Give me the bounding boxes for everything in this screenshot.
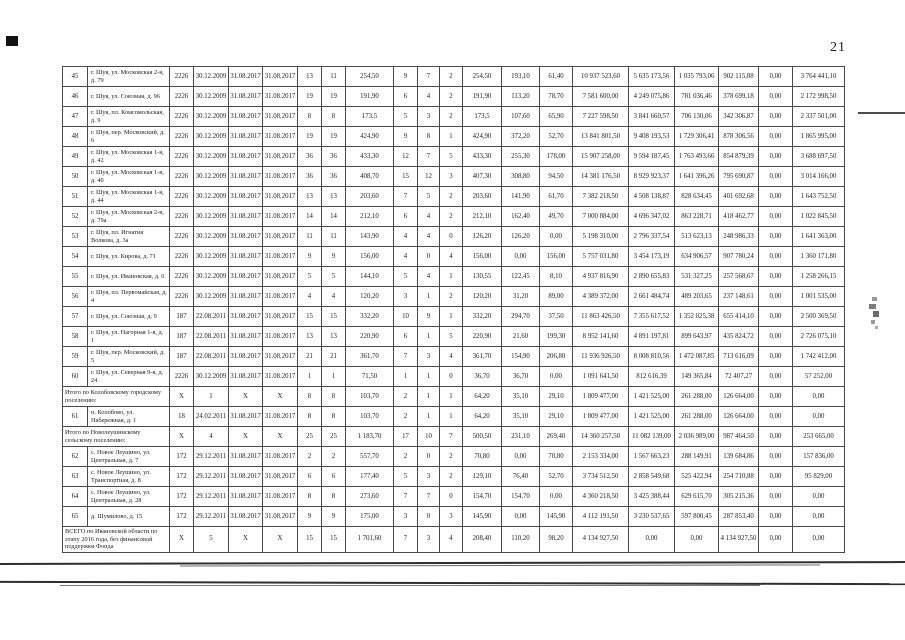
value-cell: 52,70 (540, 467, 573, 487)
value-cell: 31.08.2017 (263, 507, 298, 527)
value-cell: 143,90 (346, 227, 394, 247)
address-cell: с. Новое Леушино, ул. Транспортная, д. 8 (88, 467, 170, 487)
value-cell: 110,20 (502, 527, 540, 553)
value-cell: 372,20 (502, 127, 540, 147)
value-cell: 98,20 (540, 527, 573, 553)
value-cell: X (170, 387, 194, 407)
address-cell: с. Новое Леушино, ул. Центральная, д. 7 (88, 447, 170, 467)
address-cell: г. Шуя, ул. Московская 2-я, д. 79 (88, 67, 170, 87)
value-cell: 212,10 (463, 207, 502, 227)
value-cell: 31.08.2017 (263, 87, 298, 107)
value-cell: 854 879,39 (719, 147, 759, 167)
value-cell: 1 (418, 367, 440, 387)
value-cell: 4 112 191,50 (573, 507, 629, 527)
value-cell: 2 726 075,10 (793, 327, 845, 347)
value-cell: X (170, 427, 194, 447)
address-cell: г. Шуя, пл. Первомайская, д. 4 (88, 287, 170, 307)
value-cell: 64,20 (463, 387, 502, 407)
value-cell: 2 (440, 207, 463, 227)
value-cell: 0,00 (793, 507, 845, 527)
value-cell: 287 853,40 (719, 507, 759, 527)
value-cell: 187 (170, 307, 194, 327)
value-cell: 57 252,00 (793, 367, 845, 387)
value-cell: 89,00 (540, 287, 573, 307)
value-cell: 1 472 087,85 (675, 347, 719, 367)
value-cell: 0,00 (502, 247, 540, 267)
value-cell: 120,20 (463, 287, 502, 307)
value-cell: 2 036 989,00 (675, 427, 719, 447)
value-cell: 61,70 (540, 187, 573, 207)
table-row: 60г. Шуя, ул. Северная 9-я, д. 24222630.… (63, 367, 845, 387)
value-cell: 308,80 (502, 167, 540, 187)
value-cell: 31.08.2017 (263, 327, 298, 347)
value-cell: 0,00 (793, 407, 845, 427)
value-cell: 14 360 257,50 (573, 427, 629, 447)
value-cell: 156,00 (346, 247, 394, 267)
value-cell: 11 863 426,50 (573, 307, 629, 327)
value-cell: 203,60 (346, 187, 394, 207)
value-cell: 178,00 (540, 147, 573, 167)
value-cell: 31.08.2017 (263, 487, 298, 507)
value-cell: 0,00 (759, 247, 793, 267)
value-cell: 261 288,00 (675, 407, 719, 427)
value-cell: 30.12.2009 (194, 67, 229, 87)
table-row: 45г. Шуя, ул. Московская 2-я, д. 7922263… (63, 67, 845, 87)
value-cell: 31.08.2017 (263, 187, 298, 207)
value-cell: 31.08.2017 (263, 247, 298, 267)
value-cell: 10 937 523,60 (573, 67, 629, 87)
value-cell: 8 (298, 487, 322, 507)
value-cell: 31.08.2017 (229, 127, 263, 147)
scan-artifact-line (180, 564, 820, 566)
value-cell: 61,40 (540, 67, 573, 87)
value-cell: 72 407,27 (719, 367, 759, 387)
value-cell: 5 (394, 467, 418, 487)
value-cell: 2 (440, 187, 463, 207)
address-cell: г. Шуя, пл. Игнатия Волкова, д. 3а (88, 227, 170, 247)
value-cell: 3 425 388,44 (629, 487, 675, 507)
value-cell: 378 699,18 (719, 87, 759, 107)
value-cell: 361,70 (346, 347, 394, 367)
value-cell: 103,70 (346, 407, 394, 427)
value-cell: 9 (394, 127, 418, 147)
value-cell: 2226 (170, 227, 194, 247)
value-cell: 1 352 025,38 (675, 307, 719, 327)
address-cell: г. Шуя, ул. Кирова, д. 71 (88, 247, 170, 267)
value-cell: 8 (322, 107, 346, 127)
value-cell: 145,90 (540, 507, 573, 527)
value-cell: 29,10 (540, 387, 573, 407)
value-cell: 22.08.2011 (194, 307, 229, 327)
value-cell: 7 (418, 487, 440, 507)
value-cell: 5 (394, 267, 418, 287)
row-number-cell: 59 (63, 347, 88, 367)
value-cell: 2 500 369,50 (793, 307, 845, 327)
value-cell: 1 (194, 387, 229, 407)
row-number-cell: 49 (63, 147, 88, 167)
value-cell: 0,00 (759, 507, 793, 527)
value-cell: 248 986,33 (719, 227, 759, 247)
value-cell: 7 (418, 147, 440, 167)
value-cell: X (263, 427, 298, 447)
value-cell: 1 (440, 267, 463, 287)
value-cell: 208,40 (463, 527, 502, 553)
value-cell: 1 001 535,00 (793, 287, 845, 307)
value-cell: 899 643,97 (675, 327, 719, 347)
value-cell: 8 929 923,37 (629, 167, 675, 187)
value-cell: 4 (194, 427, 229, 447)
value-cell: 332,20 (463, 307, 502, 327)
value-cell: X (263, 527, 298, 553)
value-cell: 187 (170, 327, 194, 347)
table-row: 57г. Шуя, ул. Союзная, д. 918722.08.2011… (63, 307, 845, 327)
value-cell: 103,70 (346, 387, 394, 407)
row-number-cell: 63 (63, 467, 88, 487)
value-cell: 1 763 493,66 (675, 147, 719, 167)
value-cell: 31.08.2017 (263, 107, 298, 127)
value-cell: 254 710,88 (719, 467, 759, 487)
table-row: 61п. Колобово, ул. Набережная, д. 11824.… (63, 407, 845, 427)
value-cell: 7 (418, 67, 440, 87)
value-cell: 987 464,50 (719, 427, 759, 447)
value-cell: 261 288,00 (675, 387, 719, 407)
value-cell: 30.12.2009 (194, 367, 229, 387)
value-cell: 126,20 (502, 227, 540, 247)
address-cell: г. Шуя, ул. Московская 1-я, д. 44 (88, 187, 170, 207)
value-cell: 1 742 412,00 (793, 347, 845, 367)
value-cell: 3 (394, 507, 418, 527)
value-cell: 31.08.2017 (263, 347, 298, 367)
value-cell: 2226 (170, 287, 194, 307)
scan-artifact-line (60, 585, 760, 586)
scanned-document-page: 21 45г. Шуя, ул. Московская 2-я, д. 7922… (0, 0, 905, 640)
value-cell: 7 355 617,52 (629, 307, 675, 327)
table-row: 52г. Шуя, ул. Московская 2-я, д. 79а2226… (63, 207, 845, 227)
row-number-cell: 62 (63, 447, 88, 467)
row-number-cell: 56 (63, 287, 88, 307)
value-cell: 13 (322, 327, 346, 347)
value-cell: 1 (418, 407, 440, 427)
value-cell: 0,00 (793, 527, 845, 553)
value-cell: 0,00 (540, 487, 573, 507)
value-cell: 1 641 363,00 (793, 227, 845, 247)
address-cell: г. Шуя, ул. Союзная, д. 96 (88, 87, 170, 107)
value-cell: 4 (418, 207, 440, 227)
value-cell: 3 (418, 107, 440, 127)
row-number-cell: 51 (63, 187, 88, 207)
value-cell: 29.12.2011 (194, 467, 229, 487)
table-row: 46г. Шуя, ул. Союзная, д. 96222630.12.20… (63, 87, 845, 107)
table-row: 50г. Шуя, ул. Московская 1-я, д. 4022263… (63, 167, 845, 187)
value-cell: 3 764 441,10 (793, 67, 845, 87)
value-cell: 156,00 (540, 247, 573, 267)
value-cell: 3 014 166,00 (793, 167, 845, 187)
value-cell: 2 796 337,54 (629, 227, 675, 247)
value-cell: 31.08.2017 (229, 307, 263, 327)
value-cell: 0,00 (759, 527, 793, 553)
value-cell: 25 (298, 427, 322, 447)
summary-label-cell: Итого по Новолеушинскому сельскому посел… (63, 427, 170, 447)
value-cell: 424,90 (463, 127, 502, 147)
value-cell: 193,10 (502, 67, 540, 87)
value-cell: 4 360 218,50 (573, 487, 629, 507)
value-cell: 36,70 (502, 367, 540, 387)
value-cell: 145,90 (463, 507, 502, 527)
value-cell: 29,10 (540, 407, 573, 427)
value-cell: 120,20 (346, 287, 394, 307)
address-cell: г. Шуя, ул. Нагорная 1-я, д. 1 (88, 327, 170, 347)
value-cell: 1 035 793,06 (675, 67, 719, 87)
value-cell: 126 664,00 (719, 387, 759, 407)
value-cell: 7 000 884,00 (573, 207, 629, 227)
value-cell: 525 422,94 (675, 467, 719, 487)
value-cell: 3 (418, 347, 440, 367)
value-cell: 7 382 218,50 (573, 187, 629, 207)
address-cell: г. Шуя, пер. Московский, д. 5 (88, 347, 170, 367)
address-cell: г. Шуя, ул. Московская 2-я, д. 79а (88, 207, 170, 227)
value-cell: 31.08.2017 (263, 367, 298, 387)
value-cell: 156,00 (463, 247, 502, 267)
value-cell: 273,60 (346, 487, 394, 507)
row-number-cell: 48 (63, 127, 88, 147)
value-cell: 1 (298, 367, 322, 387)
value-cell: 1 809 477,00 (573, 407, 629, 427)
value-cell: 31.08.2017 (229, 327, 263, 347)
value-cell: 162,40 (502, 207, 540, 227)
value-cell: 8 (418, 127, 440, 147)
value-cell: 2 (440, 467, 463, 487)
value-cell: 22.08.2011 (194, 327, 229, 347)
value-cell: 2226 (170, 147, 194, 167)
value-cell: 655 414,10 (719, 307, 759, 327)
value-cell: 29.12.2011 (194, 487, 229, 507)
value-cell: 31.08.2017 (229, 347, 263, 367)
value-cell: 21,60 (502, 327, 540, 347)
value-cell: 9 408 193,53 (629, 127, 675, 147)
value-cell: 94,50 (540, 167, 573, 187)
value-cell: 1 (418, 287, 440, 307)
value-cell: 11 936 926,50 (573, 347, 629, 367)
value-cell: 7 (394, 347, 418, 367)
value-cell: 2 858 549,68 (629, 467, 675, 487)
summary-row: Итого по Колобовскому городскому поселен… (63, 387, 845, 407)
value-cell: 253 665,00 (793, 427, 845, 447)
value-cell: 8 (298, 387, 322, 407)
value-cell: 31.08.2017 (263, 267, 298, 287)
table-row: 49г. Шуя, ул. Московская 1-я, д. 4222263… (63, 147, 845, 167)
value-cell: 0,00 (759, 67, 793, 87)
value-cell: 2226 (170, 187, 194, 207)
value-cell: 29.12.2011 (194, 447, 229, 467)
value-cell: 0 (418, 447, 440, 467)
value-cell: 795 690,87 (719, 167, 759, 187)
value-cell: 863 228,71 (675, 207, 719, 227)
value-cell: 31.08.2017 (229, 407, 263, 427)
value-cell: 52,70 (540, 127, 573, 147)
value-cell: 5 757 031,80 (573, 247, 629, 267)
value-cell: 8 (322, 487, 346, 507)
value-cell: 19 (322, 127, 346, 147)
value-cell: 29.12.2011 (194, 507, 229, 527)
value-cell: 31.08.2017 (263, 207, 298, 227)
value-cell: 5 635 173,56 (629, 67, 675, 87)
value-cell: 424,90 (346, 127, 394, 147)
value-cell: 3 (440, 507, 463, 527)
value-cell: 19 (298, 87, 322, 107)
value-cell: 2 (440, 447, 463, 467)
value-cell: 3 454 173,19 (629, 247, 675, 267)
address-cell: г. Шуя, пер. Московский, д. 6 (88, 127, 170, 147)
value-cell: 0,00 (759, 147, 793, 167)
value-cell: 254,50 (346, 67, 394, 87)
relocation-program-table: 45г. Шуя, ул. Московская 2-я, д. 7922263… (62, 66, 845, 553)
value-cell: 220,90 (463, 327, 502, 347)
value-cell: 6 (394, 327, 418, 347)
value-cell: 907 780,24 (719, 247, 759, 267)
value-cell: 2226 (170, 167, 194, 187)
value-cell: 31.08.2017 (263, 127, 298, 147)
value-cell: X (170, 527, 194, 553)
value-cell: 220,90 (346, 327, 394, 347)
value-cell: 30.12.2009 (194, 287, 229, 307)
value-cell: 500,50 (463, 427, 502, 447)
value-cell: 36 (298, 167, 322, 187)
value-cell: 154,70 (502, 487, 540, 507)
summary-row: Итого по Новолеушинскому сельскому посел… (63, 427, 845, 447)
value-cell: 0,00 (759, 307, 793, 327)
address-cell: г. Шуя, ул. Союзная, д. 9 (88, 307, 170, 327)
value-cell: 254,50 (463, 67, 502, 87)
value-cell: 31.08.2017 (229, 227, 263, 247)
value-cell: 4 (440, 247, 463, 267)
value-cell: 154,70 (463, 487, 502, 507)
value-cell: 8,10 (540, 267, 573, 287)
value-cell: 9 594 187,45 (629, 147, 675, 167)
value-cell: 13 (298, 187, 322, 207)
value-cell: 435 824,72 (719, 327, 759, 347)
value-cell: 2 (440, 107, 463, 127)
value-cell: 31.08.2017 (263, 467, 298, 487)
value-cell: 9 (322, 507, 346, 527)
value-cell: 11 (298, 227, 322, 247)
value-cell: X (229, 427, 263, 447)
value-cell: 1 (440, 127, 463, 147)
value-cell: 557,70 (346, 447, 394, 467)
value-cell: 828 634,45 (675, 187, 719, 207)
value-cell: 2226 (170, 267, 194, 287)
value-cell: 0,00 (759, 107, 793, 127)
value-cell: 31.08.2017 (263, 407, 298, 427)
value-cell: 95 829,00 (793, 467, 845, 487)
value-cell: 31.08.2017 (229, 487, 263, 507)
value-cell: 0,00 (759, 487, 793, 507)
row-number-cell: 45 (63, 67, 88, 87)
value-cell: 5 (418, 187, 440, 207)
value-cell: 10 (394, 307, 418, 327)
value-cell: 15 (394, 167, 418, 187)
value-cell: 30.12.2009 (194, 267, 229, 287)
value-cell: 1 567 663,23 (629, 447, 675, 467)
value-cell: 7 (394, 487, 418, 507)
value-cell: 173,5 (346, 107, 394, 127)
value-cell: 408,70 (346, 167, 394, 187)
value-cell: 2 (322, 447, 346, 467)
value-cell: 172 (170, 447, 194, 467)
value-cell: 212,10 (346, 207, 394, 227)
value-cell: 342 306,87 (719, 107, 759, 127)
value-cell: 9 (322, 247, 346, 267)
value-cell: 4 134 927,50 (573, 527, 629, 553)
value-cell: 31.08.2017 (229, 447, 263, 467)
value-cell: 177,40 (346, 467, 394, 487)
value-cell: 4 (440, 347, 463, 367)
value-cell: 8 (322, 407, 346, 427)
page-number: 21 (830, 40, 846, 56)
row-number-cell: 60 (63, 367, 88, 387)
row-number-cell: 57 (63, 307, 88, 327)
value-cell: 878 306,56 (719, 127, 759, 147)
value-cell: 31.08.2017 (263, 147, 298, 167)
value-cell: 14 381 176,50 (573, 167, 629, 187)
value-cell: 24.02.2011 (194, 407, 229, 427)
value-cell: 12 (394, 147, 418, 167)
value-cell: 0,00 (540, 367, 573, 387)
table-row: 59г. Шуя, пер. Московский, д. 518722.08.… (63, 347, 845, 367)
value-cell: 7 (394, 527, 418, 553)
value-cell: 4 (394, 227, 418, 247)
value-cell: 126 664,00 (719, 407, 759, 427)
value-cell: 407,30 (463, 167, 502, 187)
row-number-cell: 52 (63, 207, 88, 227)
value-cell: 231,10 (502, 427, 540, 447)
value-cell: 1 (418, 327, 440, 347)
value-cell: 13 841 801,50 (573, 127, 629, 147)
value-cell: 8 (298, 107, 322, 127)
value-cell: 2226 (170, 67, 194, 87)
value-cell: X (229, 387, 263, 407)
value-cell: 78,70 (540, 87, 573, 107)
value-cell: 9 (394, 67, 418, 87)
value-cell: 36 (322, 147, 346, 167)
value-cell: 31.08.2017 (229, 367, 263, 387)
value-cell: 513 623,13 (675, 227, 719, 247)
value-cell: X (229, 527, 263, 553)
value-cell: 31.08.2017 (263, 287, 298, 307)
value-cell: 35,10 (502, 387, 540, 407)
value-cell: 2 (440, 287, 463, 307)
value-cell: 0,00 (629, 527, 675, 553)
value-cell: 30.12.2009 (194, 107, 229, 127)
value-cell: 4 (418, 87, 440, 107)
value-cell: 31.08.2017 (229, 247, 263, 267)
value-cell: 1 (322, 367, 346, 387)
value-cell: 15 (298, 307, 322, 327)
value-cell: 531 327,25 (675, 267, 719, 287)
value-cell: 31.08.2017 (229, 167, 263, 187)
value-cell: 191,90 (346, 87, 394, 107)
value-cell: 0,00 (759, 127, 793, 147)
value-cell: 4 249 075,86 (629, 87, 675, 107)
value-cell: 3 (440, 167, 463, 187)
address-cell: д. Шумилово, д. 15 (88, 507, 170, 527)
value-cell: 7 227 598,50 (573, 107, 629, 127)
row-number-cell: 47 (63, 107, 88, 127)
value-cell: 10 (418, 427, 440, 447)
row-number-cell: 54 (63, 247, 88, 267)
address-cell: п. Колобово, ул. Набережная, д. 1 (88, 407, 170, 427)
value-cell: 294,70 (502, 307, 540, 327)
value-cell: 401 692,68 (719, 187, 759, 207)
